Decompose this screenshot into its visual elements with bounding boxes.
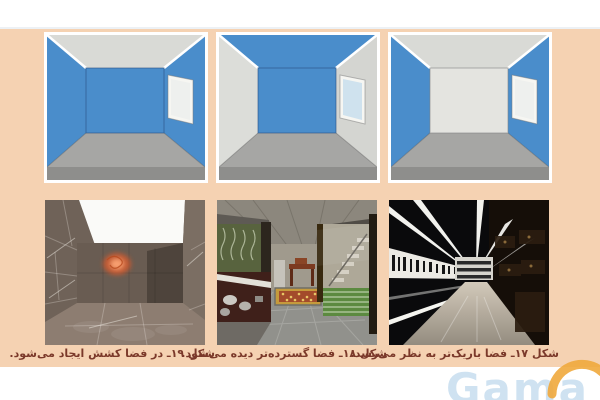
floor-edge (219, 167, 377, 180)
rug (275, 288, 321, 305)
figure-column-17: شکل ۱۷ـ فضا باریک‌تر به نظر می‌رسد. (388, 0, 552, 400)
right-edge-column (369, 214, 377, 334)
room-diagram-17 (388, 32, 552, 183)
pedestal (274, 260, 285, 290)
window (168, 75, 193, 124)
document-page: شکل ۱۷ـ فضا باریک‌تر به نظر می‌رسد. (0, 0, 600, 400)
figure-caption-18: شکل ۱۸ـ فضا گسترده‌تر دیده می‌شود. (209, 347, 387, 360)
back-wall (86, 68, 164, 133)
mosaic-wall (217, 224, 261, 274)
room-diagram-19 (44, 32, 208, 183)
figure-column-19: شکل ۱۹ـ در فضا کشش ایجاد می‌شود. (44, 0, 208, 400)
photo-17 (389, 200, 549, 345)
window (340, 75, 365, 124)
floor-edge (391, 167, 549, 180)
floor-edge (47, 167, 205, 180)
neon-sign (103, 253, 131, 275)
figure-caption-17: شکل ۱۷ـ فضا باریک‌تر به نظر می‌رسد. (381, 347, 559, 360)
figure-caption-19: شکل ۱۹ـ در فضا کشش ایجاد می‌شود. (37, 347, 215, 360)
back-wall (258, 68, 336, 133)
skylight (79, 200, 185, 245)
photo-18 (217, 200, 377, 345)
photo-19 (45, 200, 205, 345)
window (512, 75, 537, 124)
room-diagram-18 (216, 32, 380, 183)
back-wall (430, 68, 508, 133)
figure-column-18: شکل ۱۸ـ فضا گسترده‌تر دیده می‌شود. (216, 0, 380, 400)
